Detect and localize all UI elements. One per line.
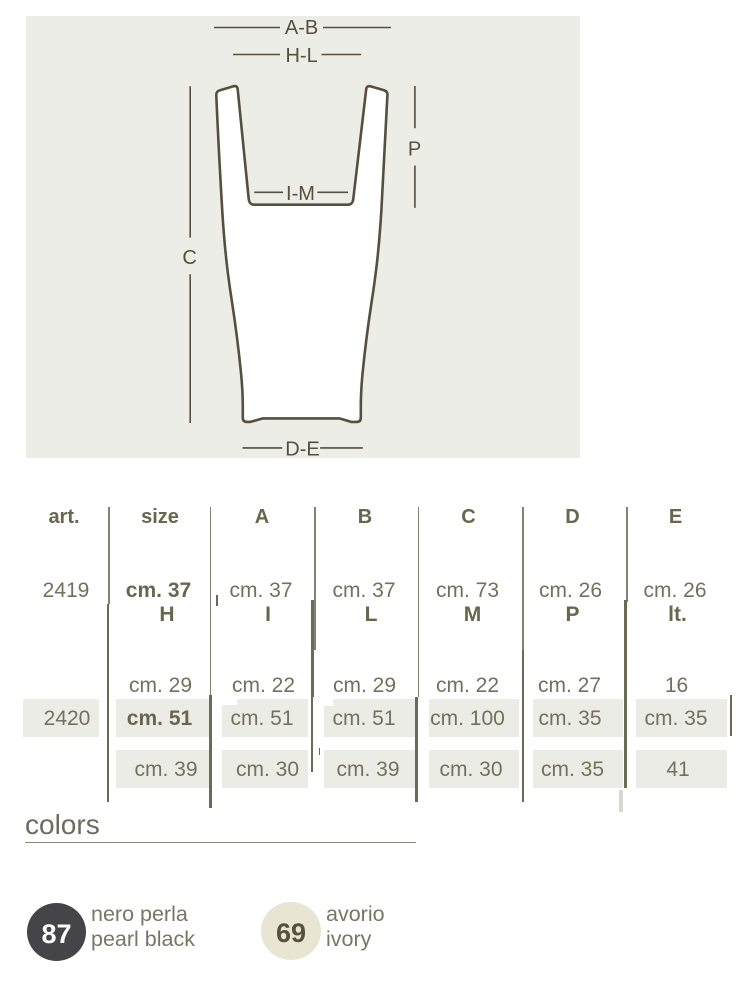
svg-text:H-L: H-L <box>285 45 317 67</box>
svg-text:P: P <box>408 139 421 161</box>
svg-text:C: C <box>182 247 196 269</box>
svg-text:I-M: I-M <box>286 183 315 205</box>
svg-text:D-E: D-E <box>285 438 319 458</box>
svg-text:A-B: A-B <box>285 17 318 39</box>
